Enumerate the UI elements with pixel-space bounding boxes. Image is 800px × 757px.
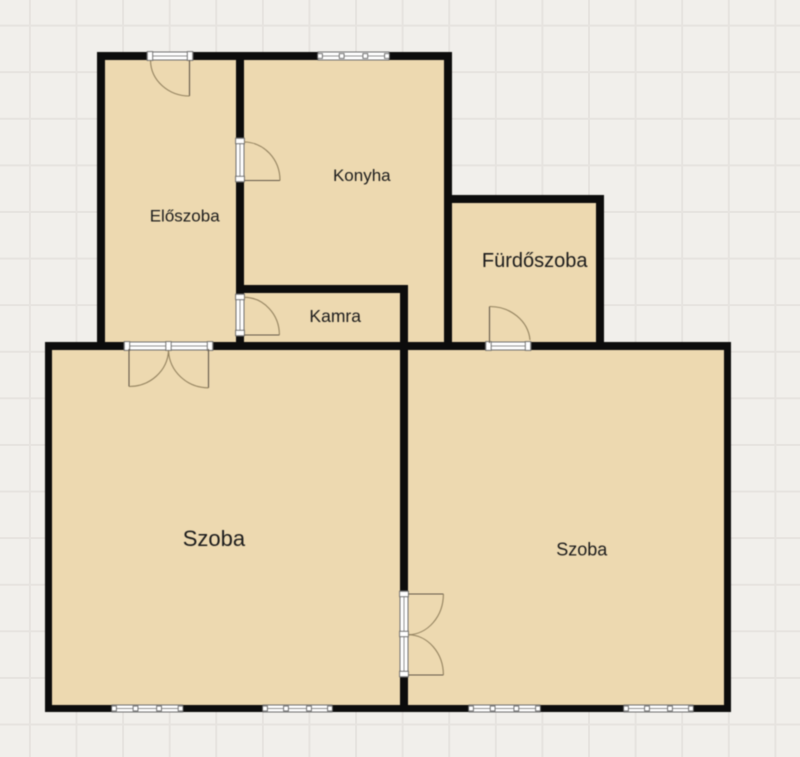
svg-text:Kamra: Kamra xyxy=(309,306,361,326)
svg-text:Fürdőszoba: Fürdőszoba xyxy=(482,250,588,272)
svg-text:Előszoba: Előszoba xyxy=(150,207,220,226)
svg-text:Szoba: Szoba xyxy=(183,526,246,551)
svg-text:Konyha: Konyha xyxy=(333,166,391,185)
svg-text:Szoba: Szoba xyxy=(556,539,608,559)
